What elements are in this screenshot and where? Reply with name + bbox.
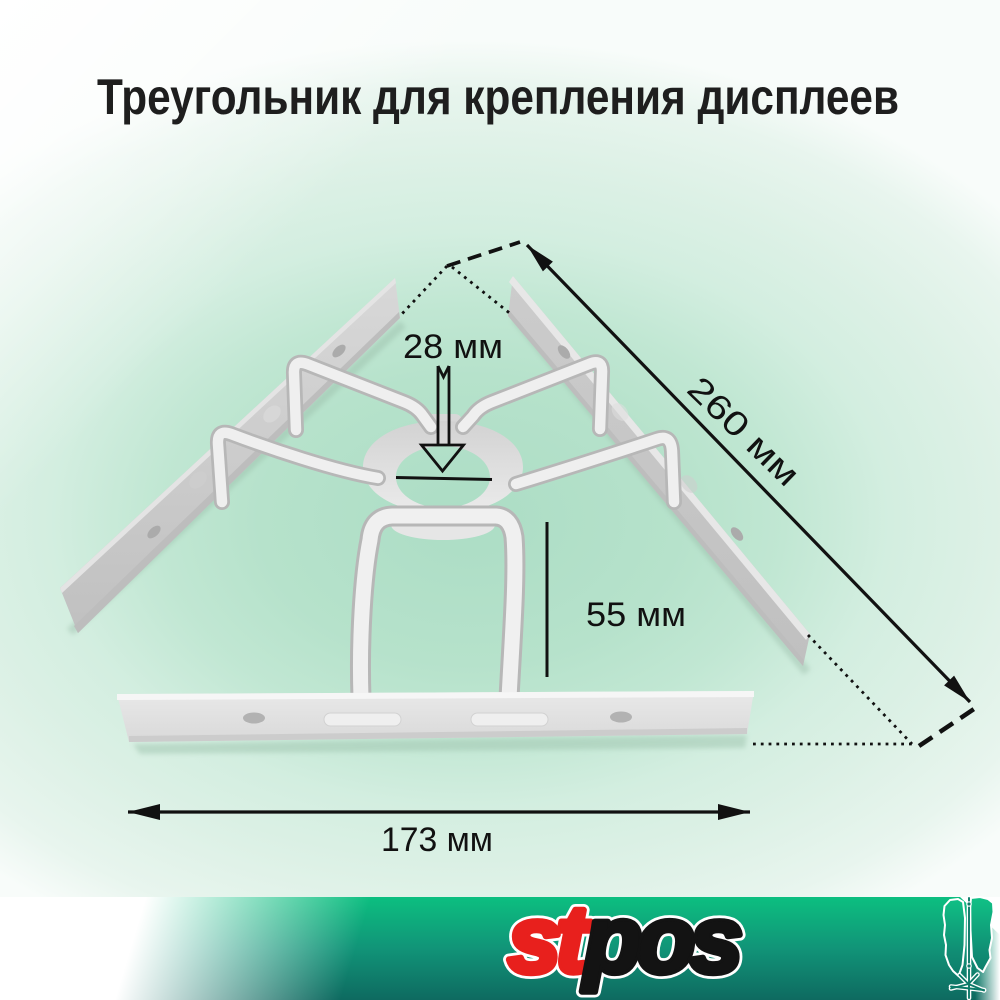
svg-text:28 мм: 28 мм xyxy=(403,328,503,366)
svg-text:pos: pos xyxy=(581,887,740,993)
svg-text:st: st xyxy=(508,887,591,993)
svg-text:55 мм: 55 мм xyxy=(586,596,686,634)
svg-text:173 мм: 173 мм xyxy=(381,821,493,859)
svg-text:Треугольник для крепления дисп: Треугольник для крепления дисплеев xyxy=(97,69,899,125)
